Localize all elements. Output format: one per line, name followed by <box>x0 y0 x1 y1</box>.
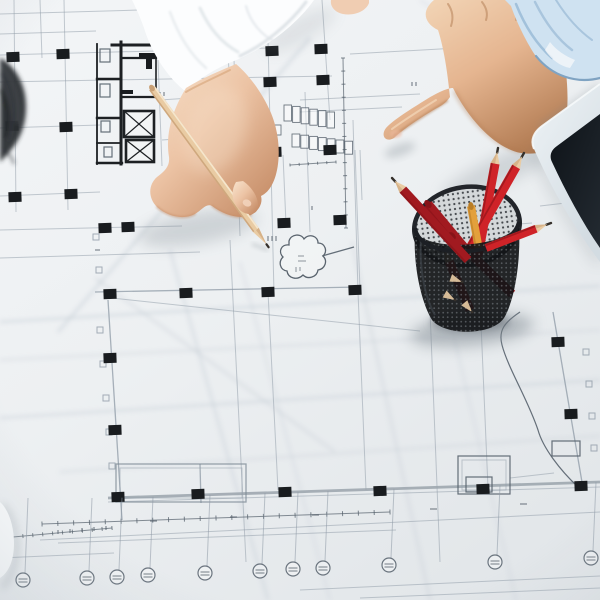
pencil-lead-dot <box>461 281 464 284</box>
scene-svg: Architects reviewing blueprints <box>0 0 600 600</box>
pencil-lead-dot <box>454 299 457 302</box>
pencil-lead-dot <box>471 311 474 314</box>
photo-canvas: Architects reviewing blueprints <box>0 0 600 600</box>
